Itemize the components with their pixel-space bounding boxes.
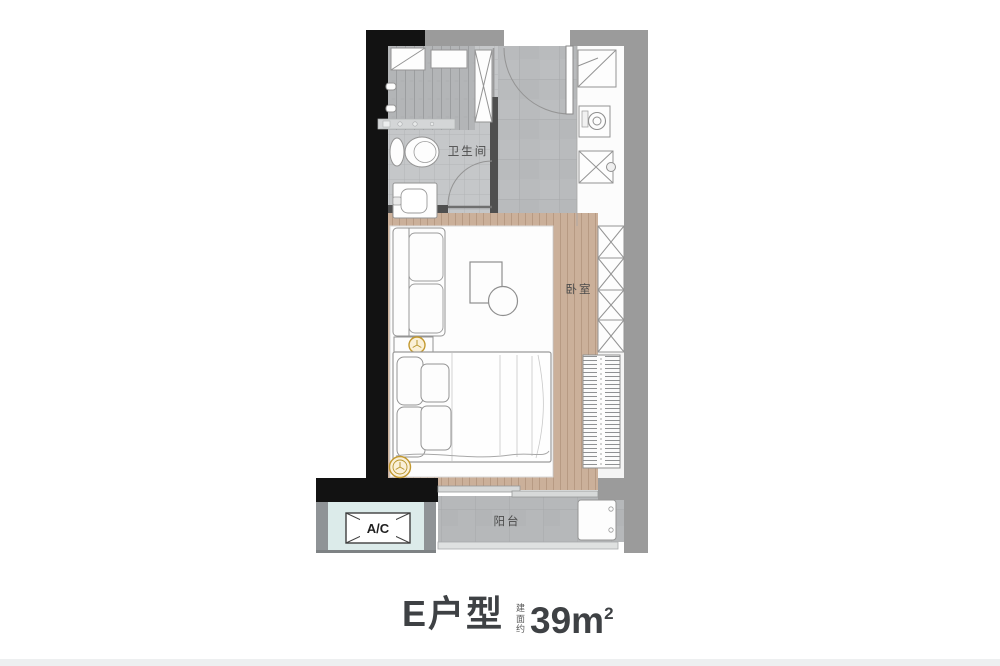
lamp-symbol	[390, 457, 411, 478]
area-value: 39m2	[530, 593, 614, 642]
bed-pillow	[421, 406, 451, 450]
bed-pillow	[421, 364, 449, 402]
page-bottom-divider	[0, 659, 1000, 666]
sink-tap-icon	[607, 163, 616, 172]
area-unit: m	[571, 600, 604, 641]
round-table	[489, 287, 518, 316]
wall-bottom-black	[316, 478, 438, 502]
bathroom-label: 卫生间	[448, 144, 489, 158]
area-superscript: 2	[604, 604, 613, 623]
entry-door-leaf	[566, 46, 573, 114]
shower-control-icon	[386, 83, 396, 90]
ac-pillar-left	[316, 502, 328, 552]
ac-unit-box: A/C	[346, 513, 410, 543]
wall-balcony-corner	[598, 478, 624, 500]
shower-control-icon	[386, 105, 396, 112]
bedroom-label: 卧室	[566, 282, 593, 296]
lamp-symbol	[409, 337, 425, 353]
wall-left-black	[366, 30, 388, 480]
ac-label: A/C	[367, 521, 390, 536]
sofa	[393, 228, 445, 336]
balcony-washer	[578, 500, 616, 540]
floor-plan-drawing: A/C 卫生间 卧室 阳台	[0, 0, 1000, 666]
floor-plan-page: A/C 卫生间 卧室 阳台 E户型 建面约 39m2	[0, 0, 1000, 666]
balcony-railing	[438, 542, 618, 549]
ac-platform-edge	[316, 550, 436, 553]
toilet-tank	[390, 138, 404, 166]
wall-right	[624, 30, 648, 553]
area-prefix: 建面约	[516, 603, 527, 635]
balcony-label: 阳台	[494, 514, 521, 528]
area-number: 39	[530, 600, 571, 641]
plan-title: E户型	[402, 593, 504, 635]
sliding-door-panel	[438, 486, 520, 492]
plan-title-block: E户型 建面约 39m2	[402, 593, 614, 642]
entry-niche	[431, 50, 467, 68]
sliding-door-panel	[512, 491, 598, 497]
ac-pillar-right	[424, 502, 436, 552]
wall-top-left	[425, 30, 504, 46]
basin-tap-icon	[393, 197, 401, 205]
entry-corridor-floor	[498, 46, 577, 228]
wardrobe	[598, 226, 624, 352]
bed-pillow	[397, 357, 423, 405]
